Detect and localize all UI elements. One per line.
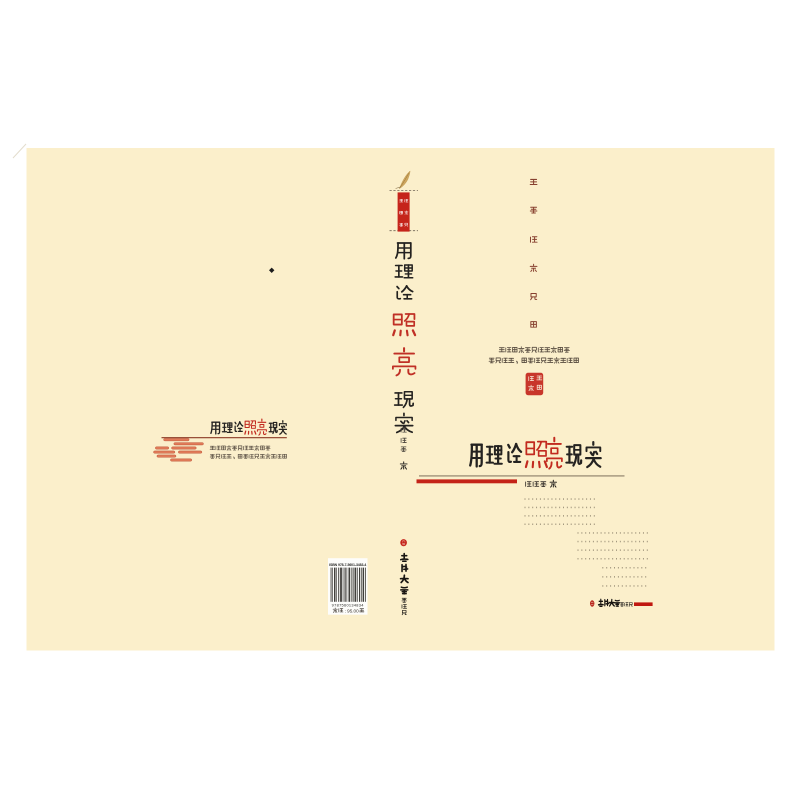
svg-text:ISBN 978-7-5601-3483-4: ISBN 978-7-5601-3483-4 — [329, 563, 366, 567]
svg-text:: 95.00: : 95.00 — [345, 608, 359, 613]
svg-text:9787560134834: 9787560134834 — [332, 602, 365, 607]
